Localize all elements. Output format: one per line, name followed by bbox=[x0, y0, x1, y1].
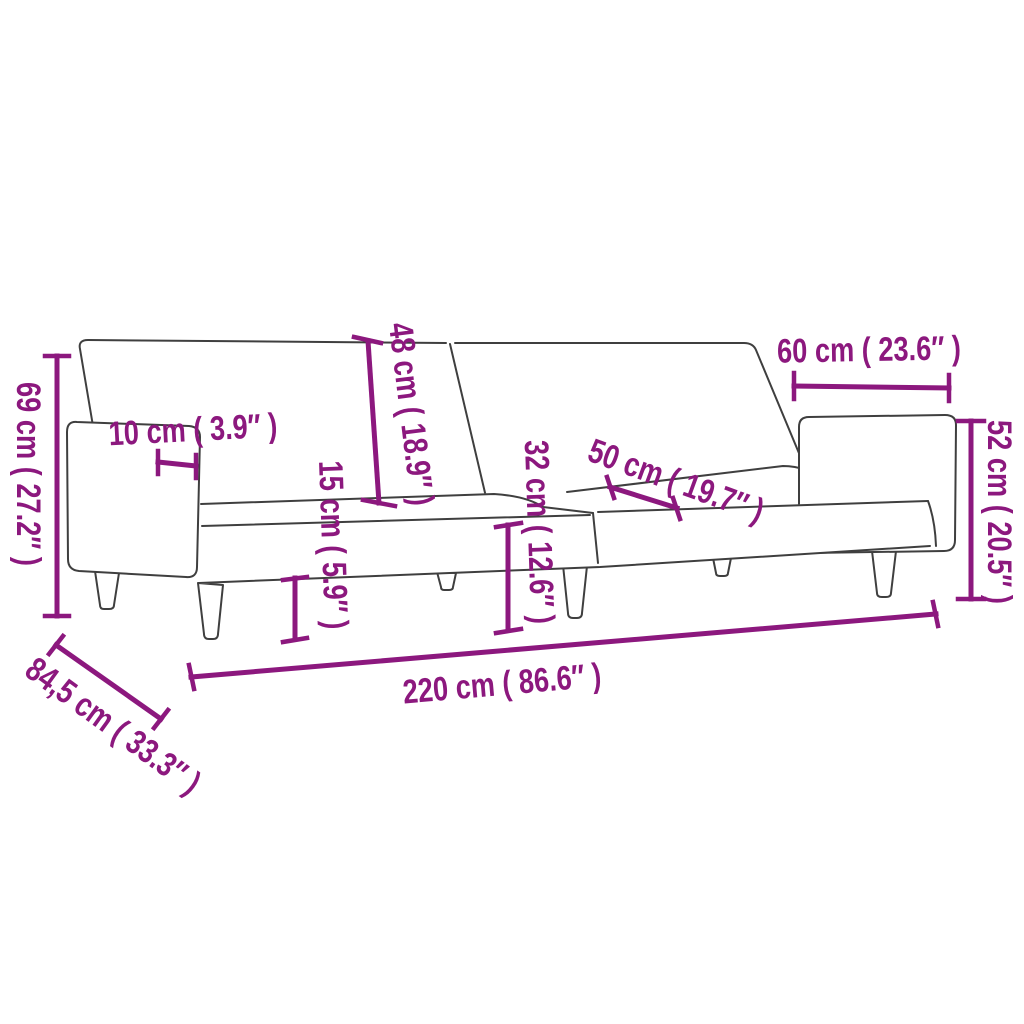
sofa-leg bbox=[95, 571, 119, 609]
dim-line-backrest-section-width bbox=[794, 373, 949, 401]
sofa-leg bbox=[198, 583, 223, 639]
dim-line-overall-height bbox=[45, 356, 69, 616]
sofa-leg bbox=[563, 565, 587, 618]
dimension-label-armrest-width: 10 cm ( 3.9″ ) bbox=[108, 409, 278, 452]
dimension-label-overall-height: 69 cm ( 27.2″ ) bbox=[11, 382, 45, 566]
sofa-leg bbox=[437, 572, 456, 590]
sofa-leg bbox=[713, 558, 731, 576]
dimension-label-folded-armrest-height: 52 cm ( 20.5″ ) bbox=[982, 420, 1016, 604]
diagram-line-art bbox=[0, 0, 1024, 1024]
sofa-leg bbox=[872, 551, 896, 597]
dimension-label-backrest-section-width: 60 cm ( 23.6″ ) bbox=[777, 331, 961, 368]
sofa-dimension-diagram: 69 cm ( 27.2″ ) 10 cm ( 3.9″ ) 48 cm ( 1… bbox=[0, 0, 1024, 1024]
dimension-label-ground-clearance: 15 cm ( 5.9″ ) bbox=[313, 460, 353, 630]
sofa-backrest-seam bbox=[450, 344, 486, 497]
dim-line-ground-clearance bbox=[283, 577, 307, 642]
dimension-label-seat-height: 32 cm ( 12.6″ ) bbox=[519, 440, 559, 625]
